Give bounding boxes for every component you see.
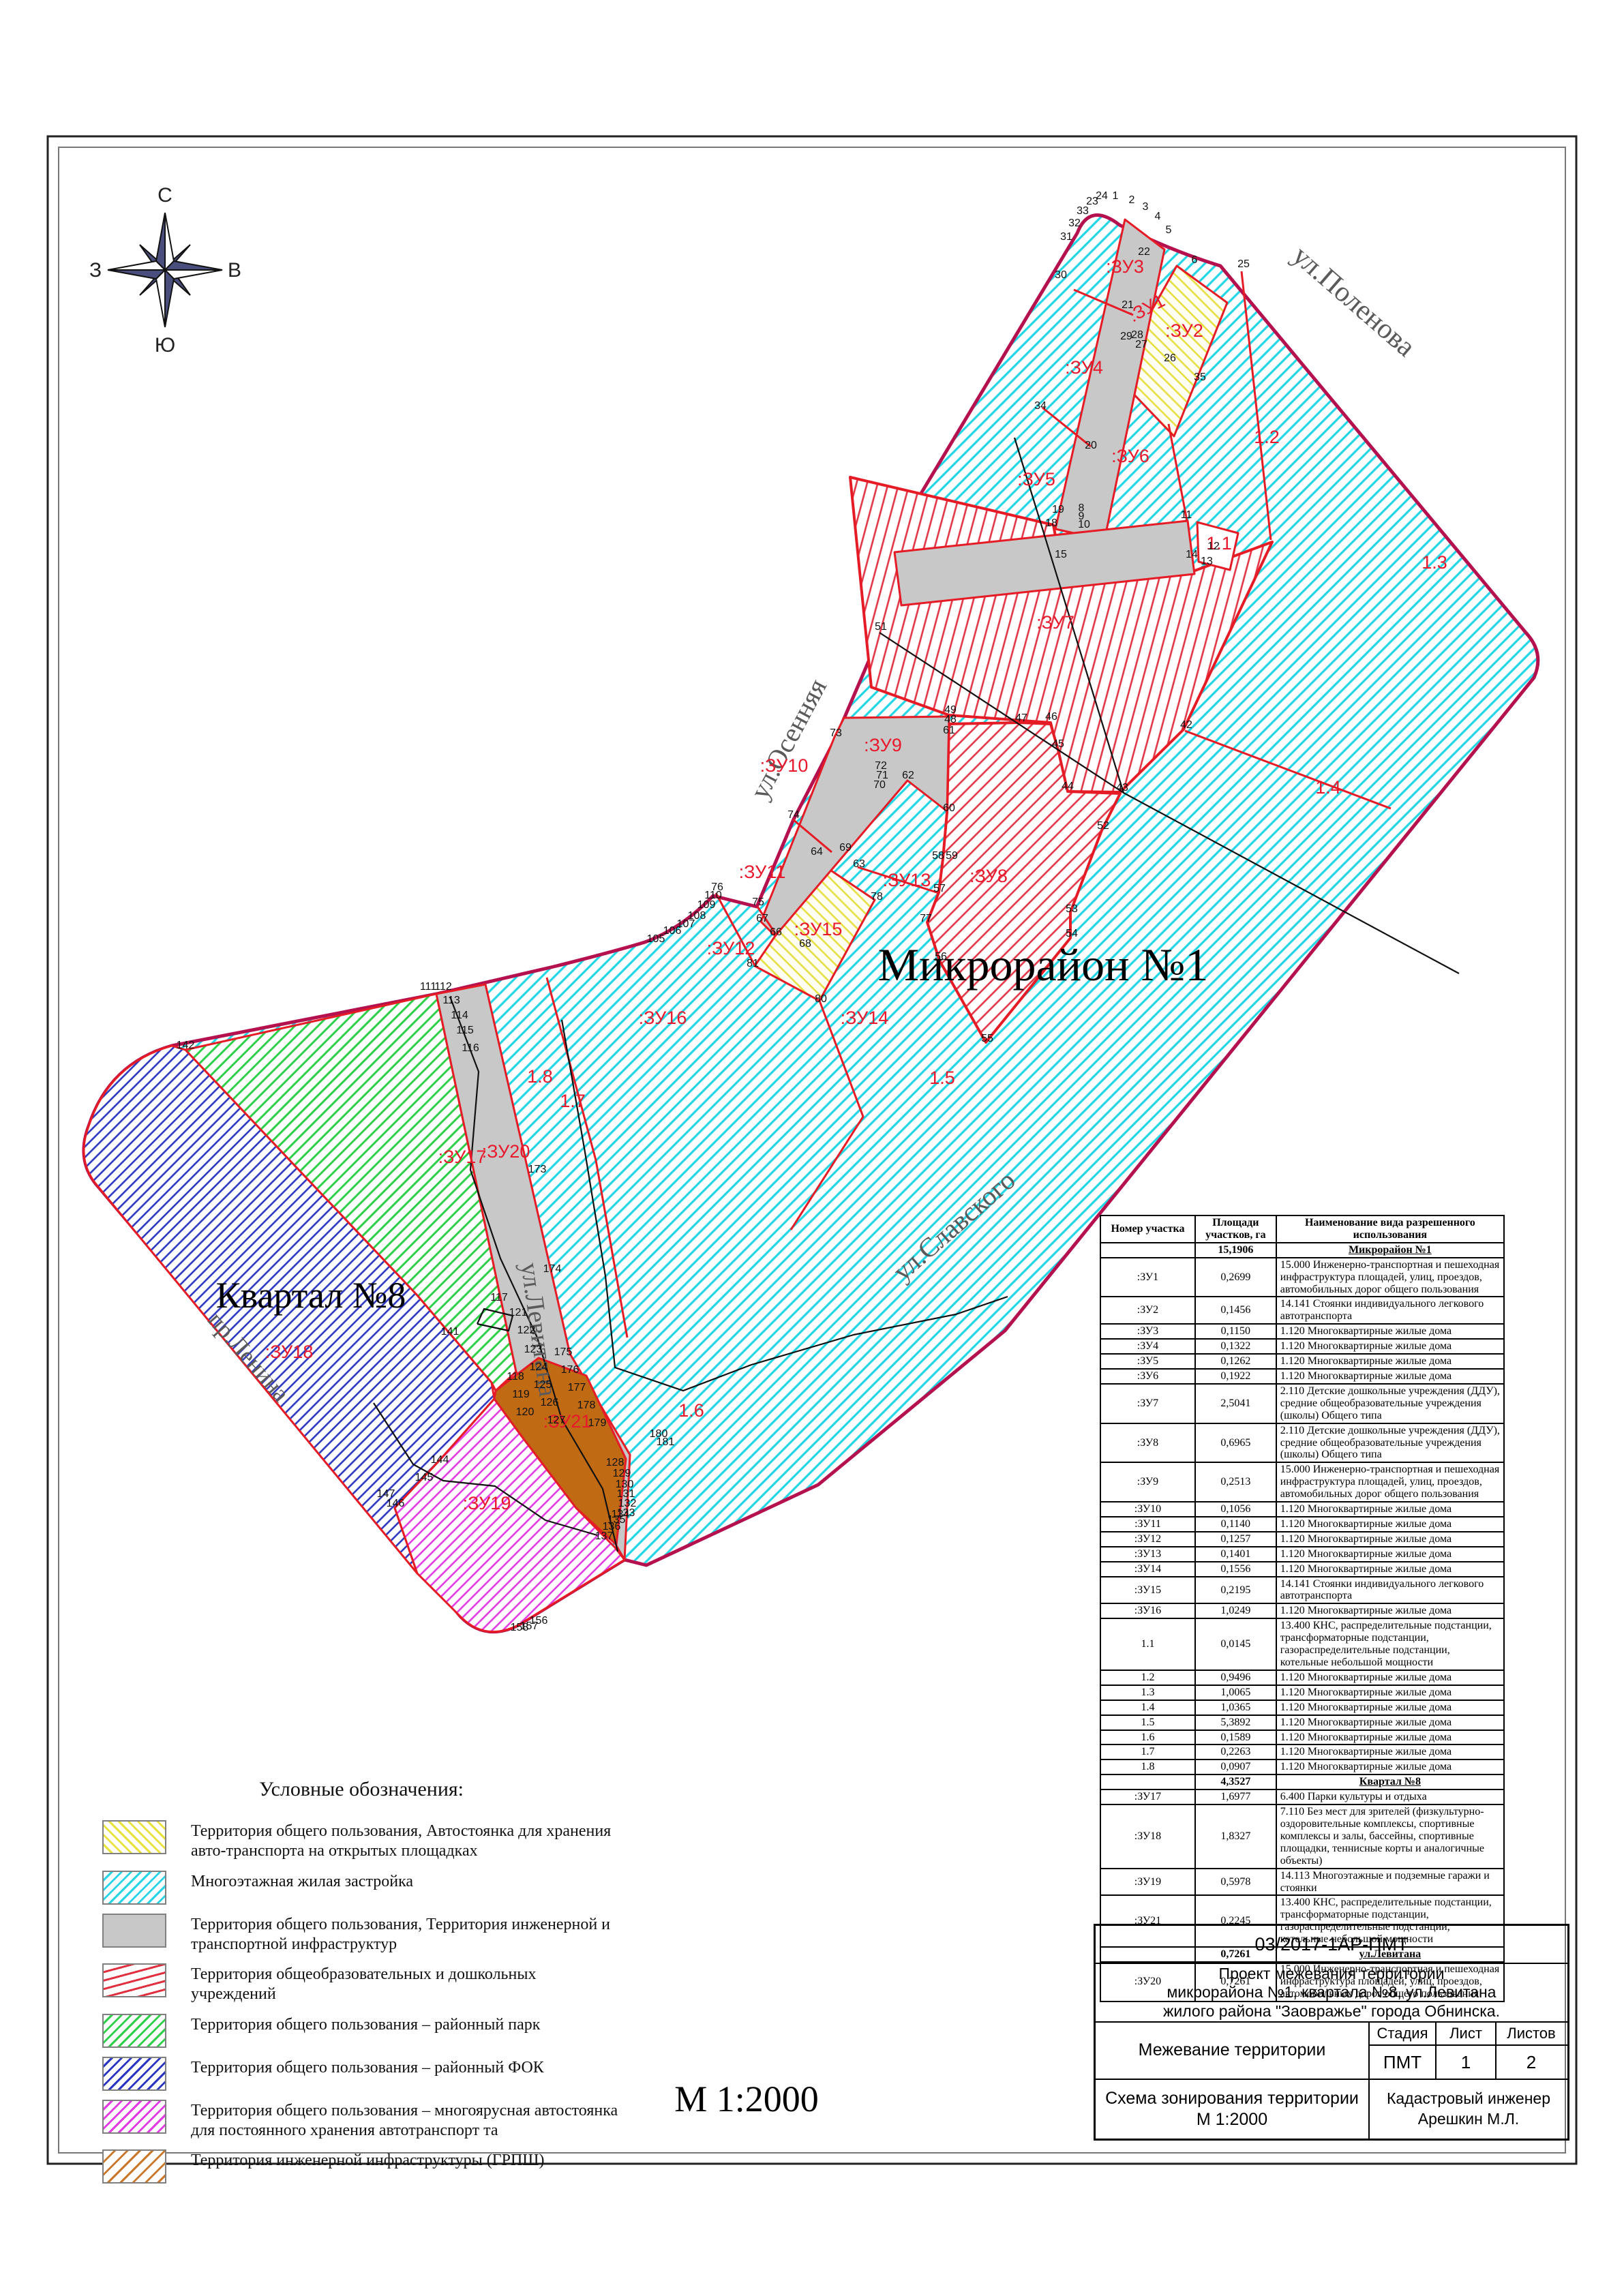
- table-cell: 13.400 КНС, распределительные подстанции…: [1276, 1618, 1504, 1670]
- table-cell: 15.000 Инженерно-транспортная и пешеходн…: [1276, 1258, 1504, 1297]
- vertex-label: 12: [1207, 541, 1220, 552]
- vertex-label: 124: [530, 1361, 548, 1373]
- table-row: :ЗУ40,13221.120 Многоквартирные жилые до…: [1100, 1339, 1504, 1354]
- table-cell: 1.120 Многоквартирные жилые дома: [1276, 1547, 1504, 1562]
- table-cell: :ЗУ13: [1100, 1547, 1195, 1562]
- vertex-label: 127: [547, 1415, 566, 1426]
- table-cell: :ЗУ10: [1100, 1502, 1195, 1517]
- table-row: 1.55,38921.120 Многоквартирные жилые дом…: [1100, 1715, 1504, 1730]
- table-row: 1.41,03651.120 Многоквартирные жилые дом…: [1100, 1700, 1504, 1715]
- table-cell: 1.120 Многоквартирные жилые дома: [1276, 1744, 1504, 1759]
- table-row: :ЗУ140,15561.120 Многоквартирные жилые д…: [1100, 1562, 1504, 1577]
- table-row: 1.10,014513.400 КНС, распределительные п…: [1100, 1618, 1504, 1670]
- table-cell: 1.120 Многоквартирные жилые дома: [1276, 1603, 1504, 1618]
- table-row: :ЗУ161,02491.120 Многоквартирные жилые д…: [1100, 1603, 1504, 1618]
- plot-label: :ЗУ7: [1036, 612, 1074, 633]
- table-cell: 1.6: [1100, 1730, 1195, 1745]
- legend-item: Территория инженерной инфраструктуры (ГР…: [102, 2149, 648, 2184]
- vertex-label: 46: [1045, 711, 1057, 723]
- vertex-label: 66: [770, 926, 782, 938]
- vertex-label: 33: [1077, 205, 1089, 217]
- table-header-row: Номер участкаПлощади участков, гаНаимено…: [1100, 1215, 1504, 1243]
- plot-label: 1.7: [560, 1091, 586, 1111]
- vertex-label: 24: [1096, 190, 1108, 202]
- area-label: Микрорайон №1: [878, 939, 1209, 991]
- stage-row-label: Межевание территории: [1096, 2023, 1368, 2079]
- table-cell: :ЗУ7: [1100, 1384, 1195, 1423]
- project-line1: Проект межевания территории: [1163, 1965, 1500, 1984]
- table-cell: 0,2263: [1195, 1744, 1276, 1759]
- vertex-label: 11: [1181, 509, 1192, 521]
- plot-label: :ЗУ18: [265, 1342, 314, 1362]
- vertex-label: 13: [1201, 556, 1213, 567]
- table-cell: :ЗУ2: [1100, 1297, 1195, 1324]
- table-cell: 0,1150: [1195, 1324, 1276, 1339]
- vertex-label: 77: [920, 913, 932, 924]
- vertex-label: 22: [1138, 246, 1150, 258]
- vertex-label: 14: [1186, 549, 1198, 560]
- legend-item: Территория общего пользования, Автостоян…: [102, 1820, 648, 1862]
- vertex-label: 44: [1062, 781, 1074, 792]
- table-cell: 15,1906: [1195, 1243, 1276, 1258]
- vertex-label: 105: [647, 933, 665, 945]
- legend-swatch-magenta: [102, 2100, 166, 2134]
- table-cell: 14.141 Стоянки индивидуального легкового…: [1276, 1297, 1504, 1324]
- stage-value: ПМТ: [1370, 2046, 1435, 2079]
- table-cell: Площади участков, га: [1195, 1215, 1276, 1243]
- parcel-table: Номер участкаПлощади участков, гаНаимено…: [1100, 1215, 1505, 2002]
- legend-label: Территория общеобразовательных и дошколь…: [191, 1963, 620, 2005]
- vertex-label: 32: [1068, 217, 1081, 229]
- vertex-label: 3: [1143, 201, 1149, 213]
- table-cell: 4,3527: [1195, 1774, 1276, 1789]
- plot-label: :ЗУ10: [760, 755, 809, 776]
- table-row: :ЗУ90,251315.000 Инженерно-транспортная …: [1100, 1462, 1504, 1502]
- legend-item: Территория общеобразовательных и дошколь…: [102, 1963, 648, 2005]
- table-cell: 0,0145: [1195, 1618, 1276, 1670]
- table-cell: 1.120 Многоквартирные жилые дома: [1276, 1339, 1504, 1354]
- table-cell: :ЗУ17: [1100, 1789, 1195, 1804]
- vertex-label: 45: [1052, 738, 1064, 750]
- table-cell: 1.120 Многоквартирные жилые дома: [1276, 1685, 1504, 1700]
- legend-item: Территория общего пользования – районный…: [102, 2014, 648, 2048]
- table-cell: :ЗУ6: [1100, 1369, 1195, 1384]
- table-cell: :ЗУ14: [1100, 1562, 1195, 1577]
- table-cell: 1.120 Многоквартирные жилые дома: [1276, 1562, 1504, 1577]
- table-cell: 0,1262: [1195, 1354, 1276, 1369]
- table-row: :ЗУ190,597814.113 Многоэтажные и подземн…: [1100, 1869, 1504, 1896]
- plot-label: 1.3: [1422, 552, 1447, 573]
- table-cell: Микрорайон №1: [1276, 1243, 1504, 1258]
- vertex-label: 34: [1034, 400, 1047, 412]
- vertex-label: 119: [512, 1389, 530, 1400]
- project-line3: жилого района "Заовражье" города Обнинск…: [1163, 2002, 1500, 2021]
- compass-north-label: С: [157, 184, 172, 207]
- plot-label: :ЗУ8: [969, 866, 1008, 886]
- plot-label: :ЗУ2: [1165, 320, 1203, 341]
- doc-number: 03/2017-1АР-ПМТ: [1096, 1926, 1567, 1964]
- table-cell: 2,5041: [1195, 1384, 1276, 1423]
- vertex-label: 55: [981, 1033, 993, 1044]
- project-title: Проект межевания территории микрорайона …: [1096, 1964, 1567, 2023]
- compass-south-label: Ю: [155, 334, 175, 357]
- vertex-label: 78: [871, 891, 883, 903]
- vertex-label: 56: [935, 951, 947, 963]
- legend-item: Территория общего пользования, Территори…: [102, 1914, 648, 1955]
- vertex-label: 51: [875, 621, 887, 633]
- table-cell: :ЗУ9: [1100, 1462, 1195, 1502]
- table-cell: 0,1922: [1195, 1369, 1276, 1384]
- table-cell: 1.7: [1100, 1744, 1195, 1759]
- scheme-cell: Схема зонирования территории М 1:2000: [1096, 2080, 1368, 2139]
- vertex-label: 27: [1135, 339, 1147, 350]
- legend-label: Территория общего пользования – районный…: [191, 2014, 540, 2035]
- vertex-label: 10: [1078, 519, 1090, 530]
- table-cell: 1,0065: [1195, 1685, 1276, 1700]
- table-row: :ЗУ171,69776.400 Парки культуры и отдыха: [1100, 1789, 1504, 1804]
- table-cell: 1.2: [1100, 1670, 1195, 1685]
- table-cell: 1.120 Многоквартирные жилые дома: [1276, 1700, 1504, 1715]
- plot-label: :ЗУ14: [841, 1008, 889, 1028]
- table-cell: 1.5: [1100, 1715, 1195, 1730]
- vertex-label: 114: [451, 1010, 468, 1021]
- table-row: :ЗУ80,69652.110 Детские дошкольные учреж…: [1100, 1423, 1504, 1463]
- legend: Условные обозначения: Территория общего …: [102, 1778, 648, 2192]
- vertex-label: 19: [1052, 504, 1064, 515]
- vertex-label: 59: [946, 850, 958, 862]
- vertex-label: 68: [799, 938, 811, 950]
- vertex-label: 1: [1113, 190, 1119, 202]
- table-cell: 1.120 Многоквартирные жилые дома: [1276, 1532, 1504, 1547]
- table-cell: 7.110 Без мест для зрителей (физкультурн…: [1276, 1804, 1504, 1869]
- legend-item: Многоэтажная жилая застройка: [102, 1871, 648, 1905]
- table-cell: :ЗУ15: [1100, 1577, 1195, 1604]
- vertex-label: 158: [511, 1622, 529, 1633]
- plot-label: 1.5: [929, 1068, 955, 1088]
- table-cell: 2.110 Детские дошкольные учреждения (ДДУ…: [1276, 1384, 1504, 1423]
- table-cell: 0,2699: [1195, 1258, 1276, 1297]
- vertex-label: 20: [1085, 440, 1097, 451]
- vertex-label: 75: [752, 896, 764, 908]
- legend-swatch-green: [102, 2014, 166, 2048]
- table-section-row: 4,3527Квартал №8: [1100, 1774, 1504, 1789]
- table-row: :ЗУ100,10561.120 Многоквартирные жилые д…: [1100, 1502, 1504, 1517]
- legend-label: Территория общего пользования, Автостоян…: [191, 1820, 620, 1862]
- vertex-label: 181: [657, 1436, 675, 1448]
- stage-header: Стадия: [1370, 2023, 1435, 2044]
- legend-label: Территория общего пользования, Территори…: [191, 1914, 620, 1955]
- legend-title: Условные обозначения:: [102, 1778, 620, 1801]
- table-cell: :ЗУ8: [1100, 1423, 1195, 1463]
- vertex-label: 67: [756, 913, 768, 924]
- plot-label: :ЗУ17: [438, 1147, 487, 1167]
- vertex-label: 25: [1237, 258, 1250, 270]
- table-row: :ЗУ130,14011.120 Многоквартирные жилые д…: [1100, 1547, 1504, 1562]
- plot-label: :ЗУ19: [463, 1493, 511, 1513]
- plot-label: :ЗУ20: [482, 1141, 530, 1162]
- sheet-page: СЮВЗ ул.Поленоваул.Осенняяул.Славскогоул…: [0, 0, 1624, 2296]
- vertex-label: 176: [561, 1364, 580, 1376]
- vertex-label: 53: [1066, 903, 1078, 915]
- table-cell: 1.120 Многоквартирные жилые дома: [1276, 1502, 1504, 1517]
- vertex-label: 74: [787, 809, 800, 821]
- scale-label: М 1:2000: [634, 2078, 859, 2120]
- vertex-label: 142: [177, 1040, 195, 1051]
- plot-label: 1.8: [527, 1066, 553, 1087]
- table-section-row: 15,1906Микрорайон №1: [1100, 1243, 1504, 1258]
- table-cell: 14.141 Стоянки индивидуального легкового…: [1276, 1577, 1504, 1604]
- table-cell: 0,1401: [1195, 1547, 1276, 1562]
- vertex-label: 110: [704, 890, 722, 901]
- table-cell: 5,3892: [1195, 1715, 1276, 1730]
- table-row: 1.31,00651.120 Многоквартирные жилые дом…: [1100, 1685, 1504, 1700]
- vertex-label: 178: [577, 1400, 596, 1411]
- table-cell: :ЗУ4: [1100, 1339, 1195, 1354]
- plot-label: :ЗУ13: [883, 870, 931, 890]
- vertex-label: 129: [613, 1468, 631, 1479]
- plot-label: 1.6: [678, 1400, 704, 1421]
- vertex-label: 122: [517, 1325, 536, 1336]
- table-cell: :ЗУ12: [1100, 1532, 1195, 1547]
- vertex-label: 57: [933, 883, 946, 894]
- table-cell: 1,6977: [1195, 1789, 1276, 1804]
- plot-label: :ЗУ12: [707, 938, 755, 958]
- table-cell: 15.000 Инженерно-транспортная и пешеходн…: [1276, 1462, 1504, 1502]
- table-cell: 0,1322: [1195, 1339, 1276, 1354]
- legend-swatch-blue: [102, 2057, 166, 2091]
- table-cell: [1100, 1243, 1195, 1258]
- table-row: 1.60,15891.120 Многоквартирные жилые дом…: [1100, 1730, 1504, 1745]
- vertex-label: 42: [1180, 719, 1192, 731]
- engineer-line1: Кадастровый инженер: [1387, 2089, 1550, 2109]
- sheet-header: Лист: [1435, 2023, 1495, 2044]
- vertex-label: 30: [1055, 269, 1067, 281]
- vertex-label: 35: [1194, 372, 1206, 383]
- vertex-label: 141: [441, 1326, 460, 1338]
- vertex-label: 126: [541, 1397, 559, 1408]
- table-cell: :ЗУ5: [1100, 1354, 1195, 1369]
- vertex-label: 108: [688, 910, 706, 922]
- table-row: 1.70,22631.120 Многоквартирные жилые дом…: [1100, 1744, 1504, 1759]
- table-cell: Квартал №8: [1276, 1774, 1504, 1789]
- vertex-label: 117: [490, 1292, 508, 1303]
- legend-label: Территория общего пользования – многояру…: [191, 2100, 620, 2141]
- vertex-label: 48: [944, 714, 957, 725]
- plot-label: :ЗУ9: [864, 735, 902, 755]
- table-row: :ЗУ50,12621.120 Многоквартирные жилые до…: [1100, 1354, 1504, 1369]
- vertex-label: 21: [1122, 299, 1134, 311]
- table-cell: 1.120 Многоквартирные жилые дома: [1276, 1715, 1504, 1730]
- vertex-label: 112: [434, 981, 452, 993]
- vertex-label: 128: [606, 1457, 625, 1468]
- table-cell: 1.4: [1100, 1700, 1195, 1715]
- table-cell: 0,9496: [1195, 1670, 1276, 1685]
- table-cell: 1,0365: [1195, 1700, 1276, 1715]
- table-cell: :ЗУ3: [1100, 1324, 1195, 1339]
- plot-label: :ЗУ3: [1106, 256, 1144, 277]
- vertex-label: 121: [509, 1307, 528, 1318]
- vertex-label: 60: [943, 802, 955, 814]
- scheme-line2: М 1:2000: [1105, 2109, 1359, 2130]
- vertex-label: 81: [747, 958, 759, 969]
- vertex-label: 26: [1164, 352, 1176, 364]
- vertex-label: 47: [1015, 712, 1027, 724]
- table-cell: 1.1: [1100, 1618, 1195, 1670]
- vertex-label: 62: [902, 770, 914, 781]
- compass-west-label: З: [89, 259, 102, 282]
- legend-swatch-yellow: [102, 1820, 166, 1854]
- table-cell: 0,0907: [1195, 1759, 1276, 1774]
- vertex-label: 43: [1116, 782, 1128, 794]
- legend-label: Территория инженерной инфраструктуры (ГР…: [191, 2149, 544, 2171]
- table-row: :ЗУ120,12571.120 Многоквартирные жилые д…: [1100, 1532, 1504, 1547]
- table-cell: 0,1140: [1195, 1517, 1276, 1532]
- table-cell: 0,2513: [1195, 1462, 1276, 1502]
- legend-swatch-gray: [102, 1914, 166, 1948]
- table-cell: 14.113 Многоэтажные и подземные гаражи и…: [1276, 1869, 1504, 1896]
- scheme-line1: Схема зонирования территории: [1105, 2088, 1359, 2109]
- legend-swatch-red: [102, 1963, 166, 1997]
- table-cell: 6.400 Парки культуры и отдыха: [1276, 1789, 1504, 1804]
- legend-swatch-cyan: [102, 1871, 166, 1905]
- vertex-label: 2: [1129, 194, 1135, 206]
- vertex-label: 137: [595, 1530, 614, 1542]
- vertex-label: 115: [456, 1025, 474, 1036]
- table-cell: 0,1589: [1195, 1730, 1276, 1745]
- table-cell: 1.120 Многоквартирные жилые дома: [1276, 1730, 1504, 1745]
- plot-label: :ЗУ6: [1111, 446, 1149, 466]
- plot-label: :ЗУ16: [639, 1008, 687, 1028]
- legend-item: Территория общего пользования – районный…: [102, 2057, 648, 2091]
- table-row: :ЗУ72,50412.110 Детские дошкольные учреж…: [1100, 1384, 1504, 1423]
- table-cell: 0,6965: [1195, 1423, 1276, 1463]
- table-cell: 1.120 Многоквартирные жилые дома: [1276, 1369, 1504, 1384]
- vertex-label: 54: [1066, 928, 1078, 939]
- vertex-label: 174: [543, 1263, 562, 1275]
- vertex-label: 144: [431, 1454, 449, 1466]
- table-cell: 1,0249: [1195, 1603, 1276, 1618]
- compass-rose: [108, 213, 222, 327]
- vertex-label: 120: [516, 1406, 535, 1418]
- plot-label: :ЗУ5: [1017, 469, 1055, 489]
- table-row: :ЗУ110,11401.120 Многоквартирные жилые д…: [1100, 1517, 1504, 1532]
- compass-east-label: В: [228, 259, 241, 282]
- vertex-label: 5: [1166, 224, 1172, 236]
- table-cell: 0,5978: [1195, 1869, 1276, 1896]
- engineer-cell: Кадастровый инженер Арешкин М.Л.: [1368, 2080, 1567, 2139]
- legend-item: Территория общего пользования – многояру…: [102, 2100, 648, 2141]
- legend-items: Территория общего пользования, Автостоян…: [102, 1820, 648, 2184]
- sheets-value: 2: [1495, 2046, 1566, 2079]
- engineer-line2: Арешкин М.Л.: [1387, 2109, 1550, 2130]
- table-cell: :ЗУ16: [1100, 1603, 1195, 1618]
- table-cell: :ЗУ19: [1100, 1869, 1195, 1896]
- table-cell: 0,1456: [1195, 1297, 1276, 1324]
- table-row: :ЗУ20,145614.141 Стоянки индивидуального…: [1100, 1297, 1504, 1324]
- vertex-label: 4: [1155, 211, 1161, 222]
- table-cell: 1.8: [1100, 1759, 1195, 1774]
- table-cell: 1.120 Многоквартирные жилые дома: [1276, 1354, 1504, 1369]
- table-cell: :ЗУ18: [1100, 1804, 1195, 1869]
- table-row: :ЗУ150,219514.141 Стоянки индивидуальног…: [1100, 1577, 1504, 1604]
- table-row: 1.20,94961.120 Многоквартирные жилые дом…: [1100, 1670, 1504, 1685]
- plot-label: :ЗУ11: [739, 862, 786, 882]
- vertex-label: 147: [377, 1488, 395, 1500]
- vertex-label: 116: [462, 1042, 479, 1054]
- sheet-value: 1: [1435, 2046, 1495, 2079]
- plot-label: :ЗУ4: [1065, 357, 1103, 378]
- vertex-label: 177: [568, 1382, 586, 1393]
- plot-label: :ЗУ15: [794, 919, 843, 939]
- vertex-label: 52: [1097, 820, 1109, 832]
- table-cell: [1100, 1774, 1195, 1789]
- legend-label: Территория общего пользования – районный…: [191, 2057, 544, 2078]
- vertex-label: 123: [524, 1344, 543, 1355]
- legend-label: Многоэтажная жилая застройка: [191, 1871, 413, 1892]
- table-cell: 0,2195: [1195, 1577, 1276, 1604]
- vertex-label: 69: [839, 842, 852, 854]
- vertex-label: 125: [534, 1379, 552, 1391]
- table-row: 1.80,09071.120 Многоквартирные жилые дом…: [1100, 1759, 1504, 1774]
- project-line2: микрорайона №1, квартала №8, ул.Левитана: [1163, 1983, 1500, 2002]
- vertex-label: 80: [815, 993, 827, 1005]
- vertex-label: 18: [1045, 517, 1057, 529]
- vertex-label: 64: [811, 846, 823, 858]
- table-cell: Номер участка: [1100, 1215, 1195, 1243]
- street-label: ул.Поленова: [1287, 240, 1422, 363]
- vertex-label: 15: [1055, 549, 1067, 560]
- vertex-label: 173: [528, 1164, 547, 1175]
- vertex-label: 113: [442, 995, 460, 1006]
- area-label: Квартал №8: [216, 1275, 406, 1316]
- vertex-label: 145: [415, 1472, 434, 1483]
- vertex-label: 63: [853, 858, 865, 870]
- table-cell: 1,8327: [1195, 1804, 1276, 1869]
- table-cell: 2.110 Детские дошкольные учреждения (ДДУ…: [1276, 1423, 1504, 1463]
- vertex-label: 31: [1060, 231, 1072, 243]
- legend-swatch-orange: [102, 2149, 166, 2184]
- table-row: :ЗУ181,83277.110 Без мест для зрителей (…: [1100, 1804, 1504, 1869]
- vertex-label: 175: [554, 1346, 573, 1358]
- table-row: :ЗУ10,269915.000 Инженерно-транспортная …: [1100, 1258, 1504, 1297]
- table-cell: Наименование вида разрешенного использов…: [1276, 1215, 1504, 1243]
- table-cell: 1.120 Многоквартирные жилые дома: [1276, 1517, 1504, 1532]
- vertex-label: 58: [932, 850, 944, 862]
- table-cell: :ЗУ1: [1100, 1258, 1195, 1297]
- table-cell: 0,1556: [1195, 1562, 1276, 1577]
- table-row: :ЗУ60,19221.120 Многоквартирные жилые до…: [1100, 1369, 1504, 1384]
- table-cell: :ЗУ11: [1100, 1517, 1195, 1532]
- table-row: :ЗУ30,11501.120 Многоквартирные жилые до…: [1100, 1324, 1504, 1339]
- table-cell: 0,1056: [1195, 1502, 1276, 1517]
- table-cell: 0,1257: [1195, 1532, 1276, 1547]
- table-cell: 1.120 Многоквартирные жилые дома: [1276, 1324, 1504, 1339]
- vertex-label: 179: [588, 1417, 607, 1429]
- plot-label: 1.4: [1315, 777, 1341, 798]
- table-cell: 1.120 Многоквартирные жилые дома: [1276, 1759, 1504, 1774]
- table-cell: 1.120 Многоквартирные жилые дома: [1276, 1670, 1504, 1685]
- sheets-header: Листов: [1495, 2023, 1566, 2044]
- title-block: 03/2017-1АР-ПМТ Проект межевания террито…: [1094, 1924, 1569, 2141]
- vertex-label: 61: [943, 725, 955, 736]
- table-cell: 1.3: [1100, 1685, 1195, 1700]
- vertex-label: 118: [507, 1371, 524, 1383]
- vertex-label: 73: [830, 727, 842, 739]
- vertex-label: 6: [1192, 254, 1198, 266]
- vertex-label: 70: [873, 779, 886, 791]
- plot-label: 1.2: [1254, 427, 1280, 447]
